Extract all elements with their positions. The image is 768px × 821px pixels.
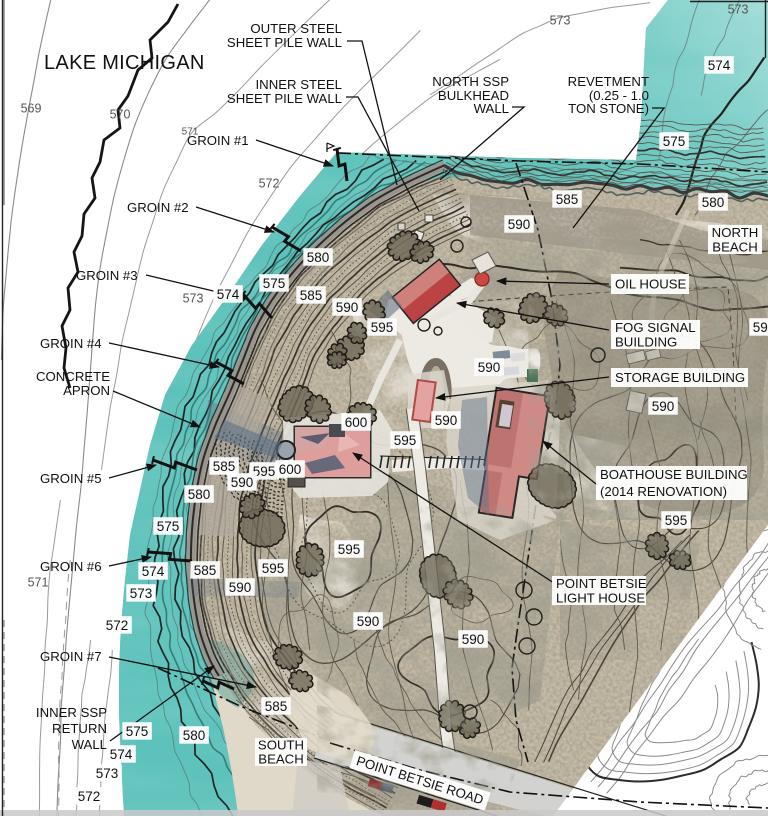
svg-text:BUILDING: BUILDING	[615, 334, 677, 349]
svg-text:571: 571	[182, 127, 199, 138]
svg-text:571: 571	[28, 576, 49, 590]
svg-text:NORTH: NORTH	[712, 225, 759, 240]
svg-text:LIGHT HOUSE: LIGHT HOUSE	[556, 590, 645, 605]
svg-text:574: 574	[110, 747, 133, 762]
svg-text:572: 572	[78, 789, 101, 804]
svg-text:573: 573	[130, 586, 153, 601]
svg-text:INNER STEEL: INNER STEEL	[256, 77, 342, 92]
svg-text:FOG SIGNAL: FOG SIGNAL	[615, 320, 696, 335]
svg-text:574: 574	[708, 58, 731, 73]
svg-text:590: 590	[357, 614, 380, 629]
svg-text:595: 595	[753, 320, 768, 335]
svg-text:573: 573	[183, 292, 204, 306]
svg-text:600: 600	[279, 462, 302, 477]
svg-text:CONCRETE: CONCRETE	[36, 369, 110, 384]
svg-text:574: 574	[217, 287, 240, 302]
svg-text:569: 569	[21, 102, 42, 116]
svg-text:575: 575	[263, 276, 286, 291]
svg-text:585: 585	[300, 288, 323, 303]
svg-text:BOATHOUSE BUILDING: BOATHOUSE BUILDING	[600, 467, 748, 482]
svg-text:GROIN #3: GROIN #3	[76, 268, 138, 283]
svg-text:WALL: WALL	[474, 101, 509, 116]
svg-text:572: 572	[106, 618, 129, 633]
svg-text:590: 590	[229, 580, 252, 595]
svg-text:595: 595	[394, 433, 417, 448]
svg-text:WALL: WALL	[72, 737, 107, 752]
svg-text:573: 573	[550, 14, 571, 28]
svg-text:590: 590	[336, 300, 359, 315]
svg-text:LAKE MICHIGAN: LAKE MICHIGAN	[44, 52, 205, 74]
svg-text:585: 585	[556, 192, 579, 207]
svg-text:(2014 RENOVATION): (2014 RENOVATION)	[600, 484, 727, 499]
svg-text:GROIN #6: GROIN #6	[40, 559, 102, 574]
svg-text:GROIN #7: GROIN #7	[40, 649, 102, 664]
svg-text:585: 585	[213, 459, 236, 474]
svg-text:SHEET PILE WALL: SHEET PILE WALL	[227, 91, 342, 106]
svg-text:GROIN #2: GROIN #2	[127, 200, 189, 215]
svg-text:575: 575	[663, 134, 686, 149]
svg-text:572: 572	[259, 177, 280, 191]
svg-text:OUTER STEEL: OUTER STEEL	[250, 21, 342, 36]
svg-text:GROIN #4: GROIN #4	[40, 336, 102, 351]
svg-text:OIL HOUSE: OIL HOUSE	[615, 277, 687, 292]
svg-text:POINT BETSIE: POINT BETSIE	[556, 576, 647, 591]
svg-text:SHEET PILE WALL: SHEET PILE WALL	[227, 35, 342, 50]
svg-text:585: 585	[265, 699, 288, 714]
svg-text:TON STONE): TON STONE)	[568, 101, 649, 116]
svg-text:574: 574	[142, 564, 165, 579]
svg-text:573: 573	[728, 3, 749, 17]
svg-text:590: 590	[652, 399, 675, 414]
svg-text:INNER SSP: INNER SSP	[36, 705, 107, 720]
svg-text:RETURN: RETURN	[52, 721, 107, 736]
svg-text:595: 595	[338, 542, 361, 557]
svg-text:573: 573	[96, 766, 119, 781]
svg-text:GROIN #5: GROIN #5	[40, 471, 102, 486]
svg-text:590: 590	[435, 413, 458, 428]
svg-text:580: 580	[702, 195, 725, 210]
svg-text:590: 590	[508, 217, 531, 232]
svg-text:NORTH SSP: NORTH SSP	[432, 74, 509, 89]
svg-text:SOUTH: SOUTH	[258, 738, 304, 753]
svg-text:580: 580	[183, 728, 206, 743]
svg-text:595: 595	[665, 513, 688, 528]
svg-text:STORAGE BUILDING: STORAGE BUILDING	[615, 370, 745, 385]
svg-text:590: 590	[478, 360, 501, 375]
svg-text:580: 580	[307, 250, 330, 265]
svg-text:REVETMENT: REVETMENT	[568, 74, 649, 89]
svg-text:APRON: APRON	[63, 383, 110, 398]
svg-text:590: 590	[462, 632, 485, 647]
svg-text:580: 580	[188, 487, 211, 502]
svg-text:595: 595	[262, 561, 285, 576]
svg-text:BEACH: BEACH	[258, 752, 303, 767]
svg-text:585: 585	[194, 563, 217, 578]
svg-text:BEACH: BEACH	[712, 239, 757, 254]
svg-text:575: 575	[126, 724, 149, 739]
svg-text:595: 595	[371, 320, 394, 335]
svg-text:575: 575	[157, 519, 180, 534]
svg-text:590: 590	[231, 475, 254, 490]
svg-text:570: 570	[110, 108, 131, 122]
svg-text:600: 600	[345, 415, 368, 430]
